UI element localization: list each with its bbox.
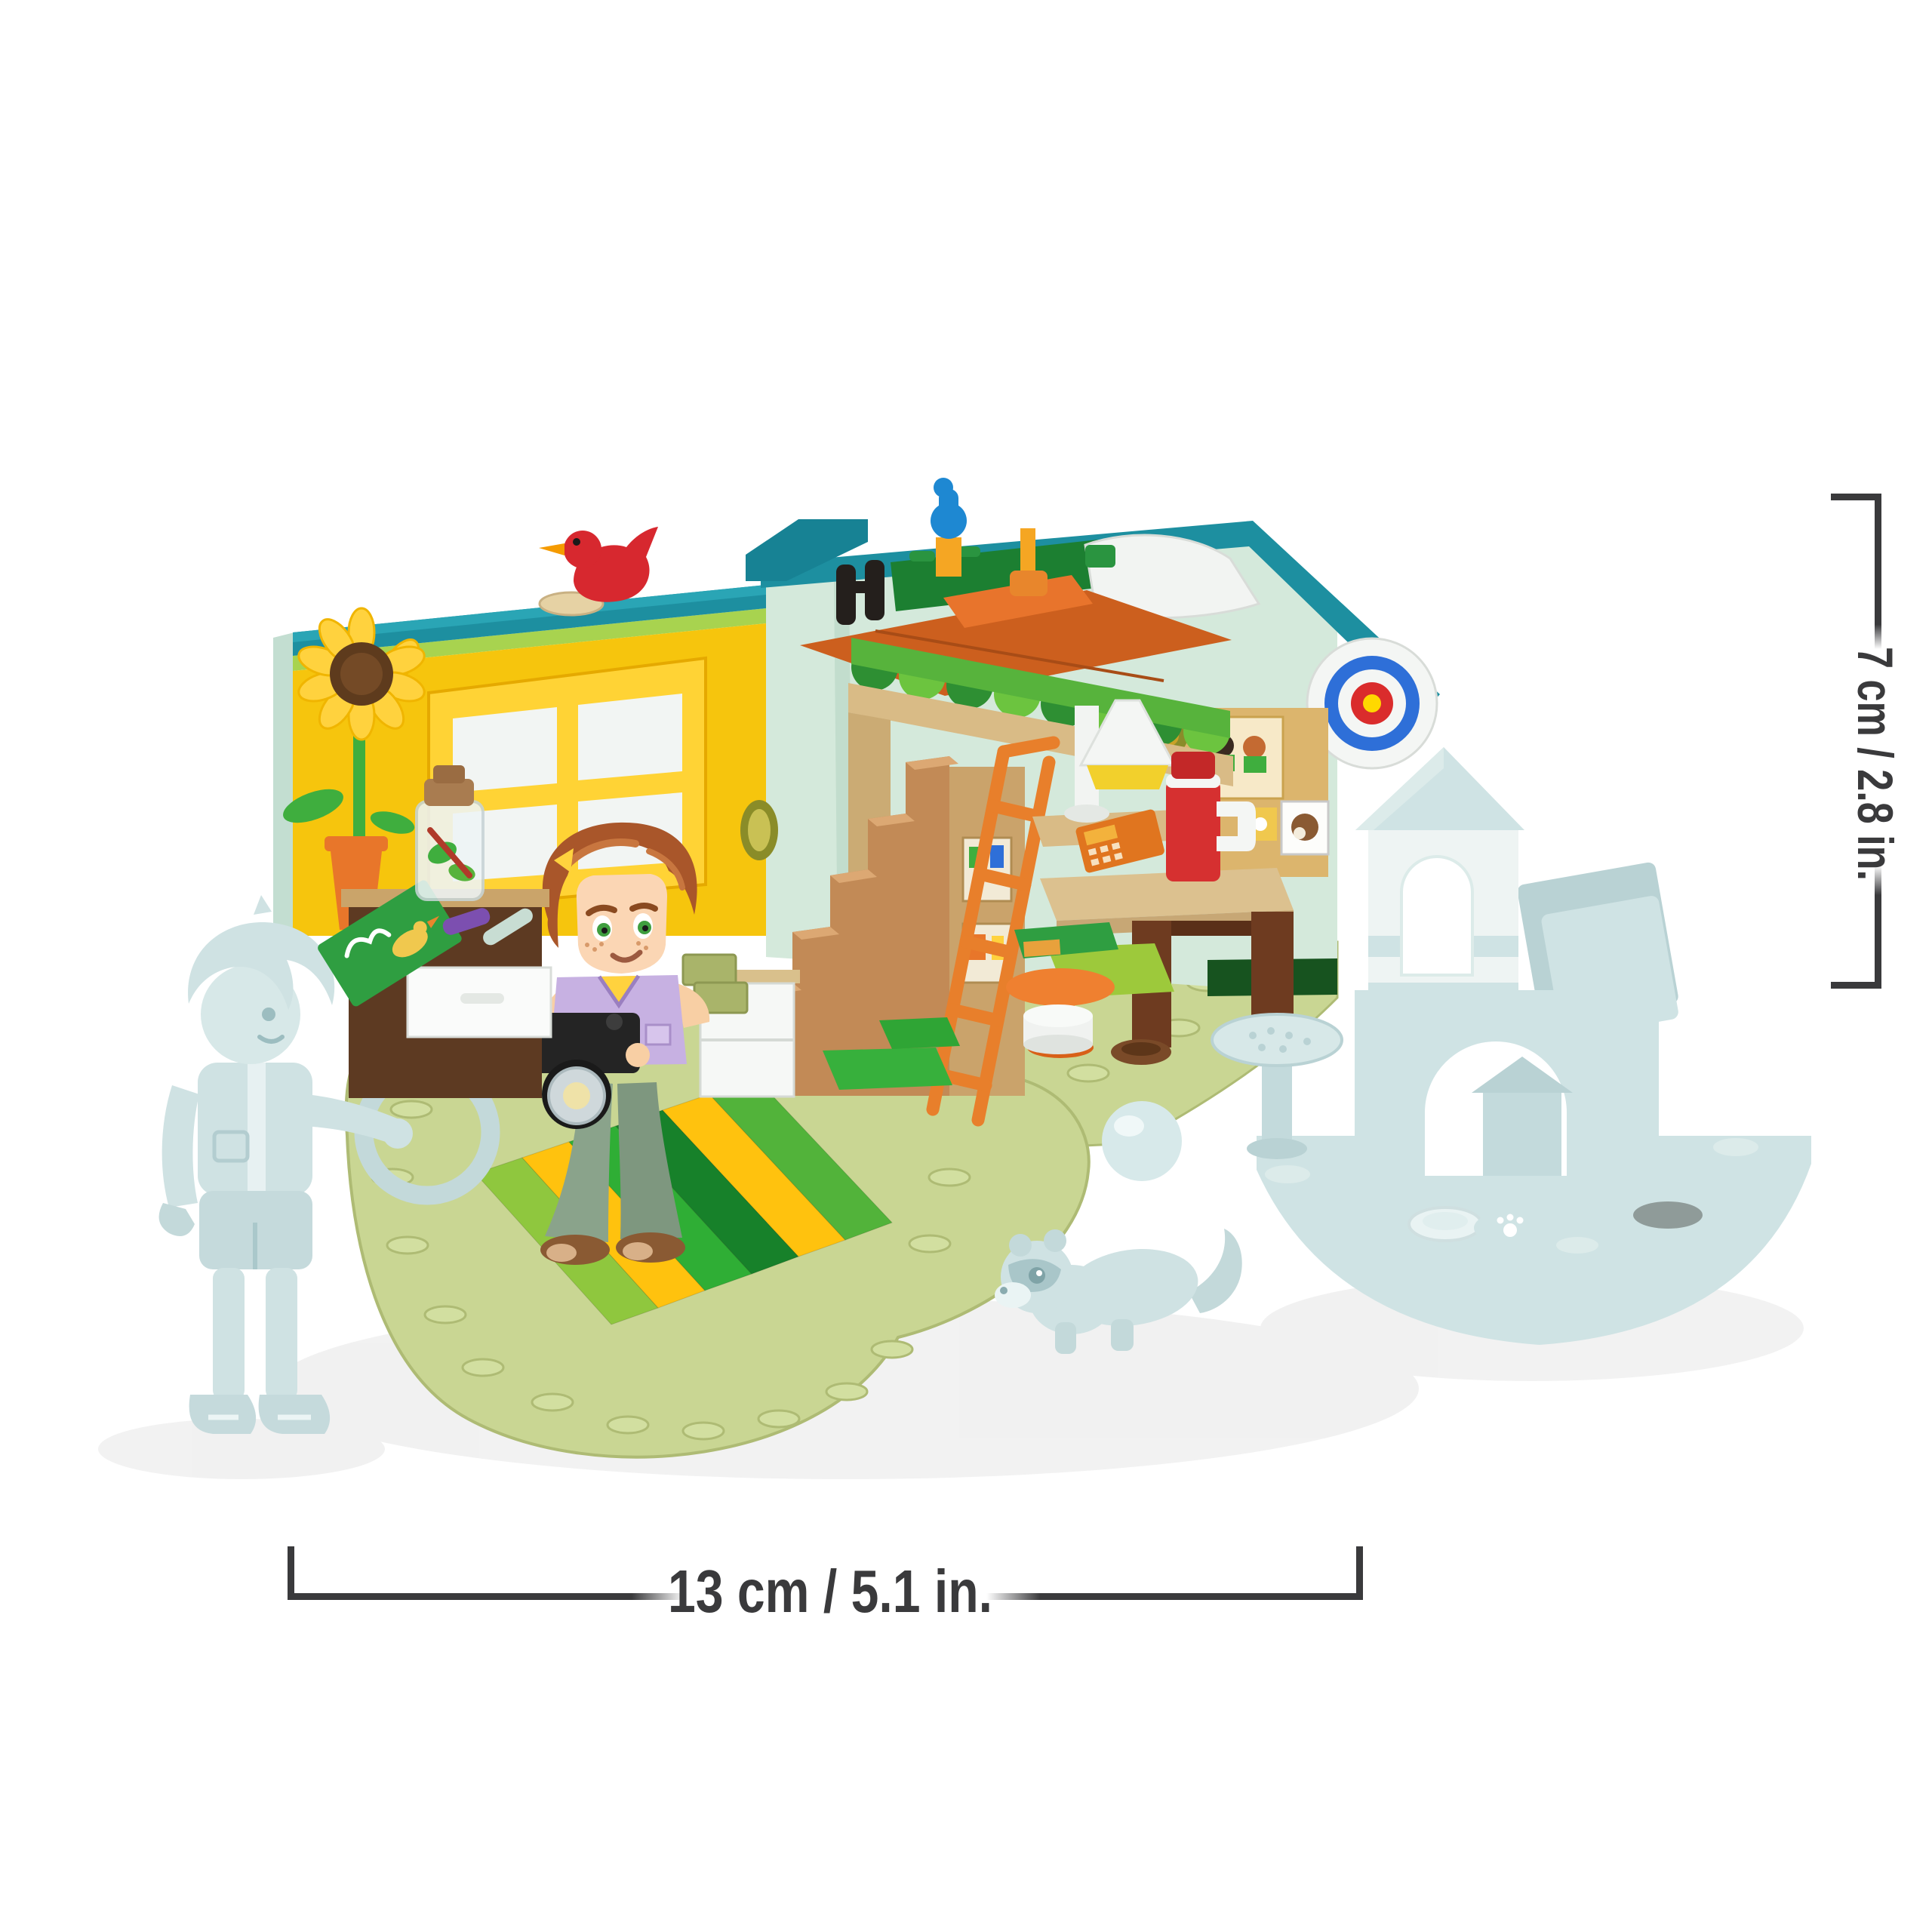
wall-mirror-icon (740, 800, 778, 860)
width-dimension-annotation: 13 cm / 5.1 in. (288, 1546, 1363, 1625)
height-dimension-annotation: 7 cm / 2.8 in. (1831, 494, 1903, 989)
green-brick (1085, 545, 1115, 568)
gray-tile (1633, 1201, 1703, 1229)
stool (1023, 1004, 1093, 1054)
pet-bowl-brown (1111, 1039, 1171, 1065)
lego-playset-illustration: 7 cm / 2.8 in. 13 cm / 5.1 in. (0, 0, 1932, 1932)
terrarium-jar-icon (417, 765, 483, 900)
ghost-ball-icon (1102, 1101, 1182, 1181)
dresser-icon (316, 878, 551, 1098)
product-image: 7 cm / 2.8 in. 13 cm / 5.1 in. (0, 0, 1932, 1932)
height-label: 7 cm / 2.8 in. (1847, 647, 1903, 881)
blue-bird-icon (931, 478, 967, 577)
width-label: 13 cm / 5.1 in. (668, 1558, 992, 1625)
